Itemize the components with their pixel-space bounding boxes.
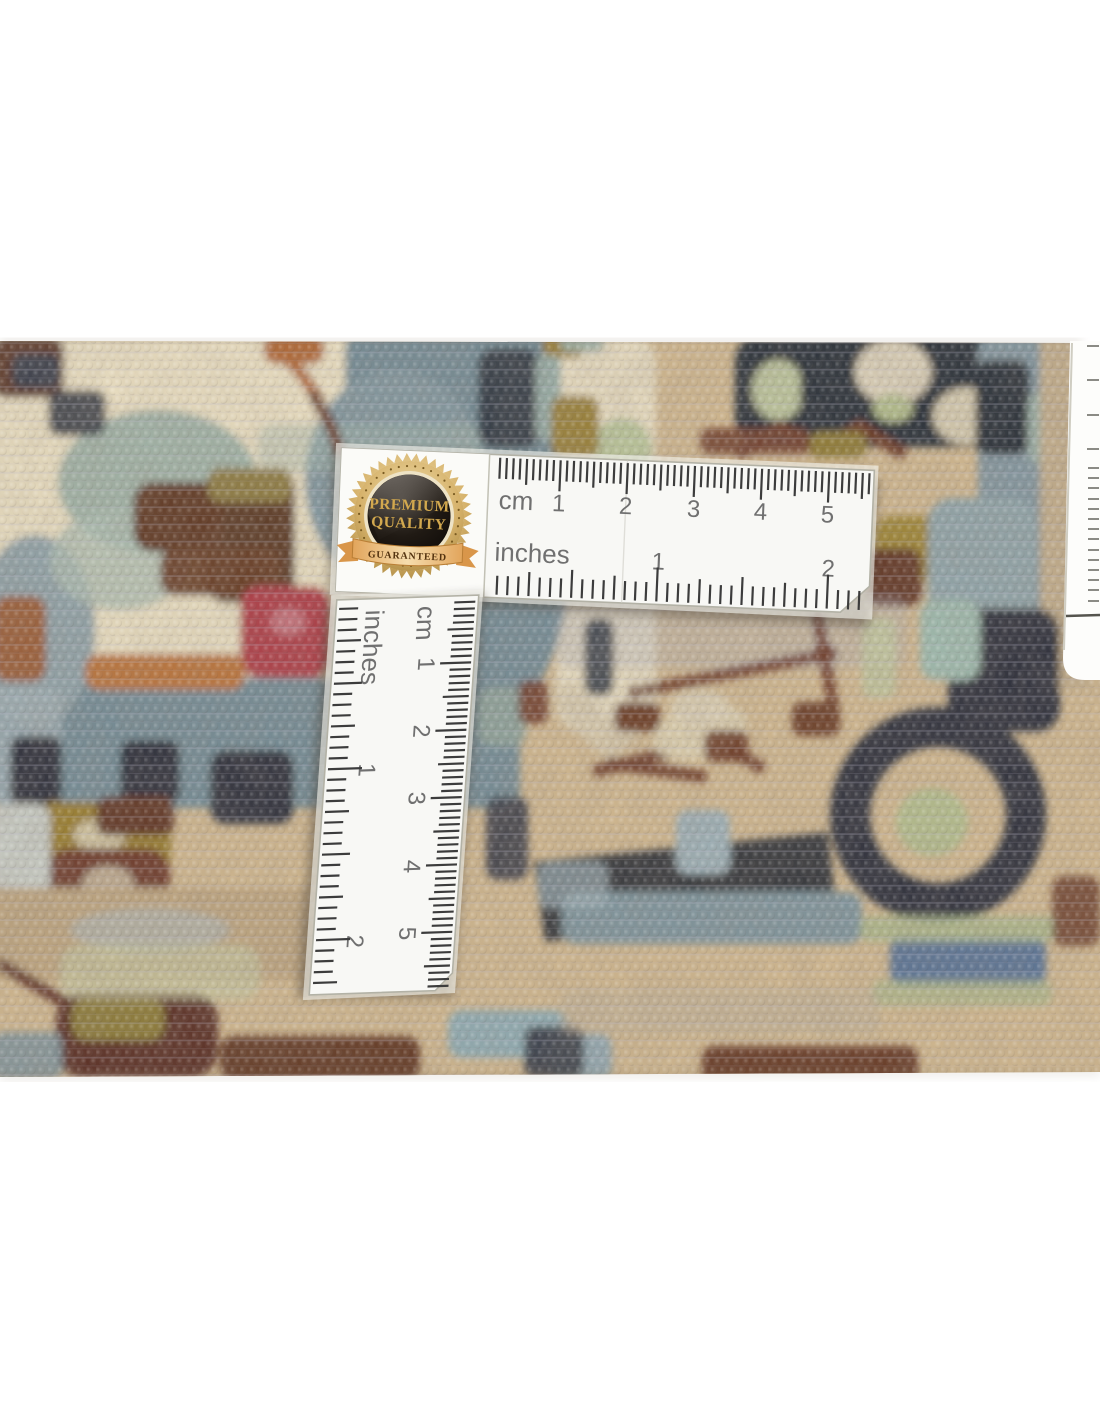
svg-text:5: 5 (393, 926, 421, 940)
svg-text:4: 4 (753, 498, 767, 526)
svg-text:inches: inches (355, 609, 390, 685)
svg-text:3: 3 (686, 496, 700, 524)
svg-text:PREMIUM: PREMIUM (369, 495, 450, 515)
svg-text:2: 2 (407, 724, 435, 738)
svg-text:2: 2 (618, 493, 632, 521)
svg-text:4: 4 (398, 859, 426, 873)
svg-text:2: 2 (340, 934, 368, 948)
svg-text:1: 1 (412, 657, 440, 671)
svg-text:cm: cm (410, 605, 442, 641)
svg-text:1: 1 (551, 490, 565, 518)
svg-text:5: 5 (820, 501, 834, 529)
svg-text:QUALITY: QUALITY (371, 513, 447, 533)
svg-text:cm: cm (498, 485, 534, 516)
svg-text:1: 1 (352, 763, 380, 777)
svg-text:inches: inches (494, 537, 570, 570)
svg-text:3: 3 (402, 791, 430, 805)
